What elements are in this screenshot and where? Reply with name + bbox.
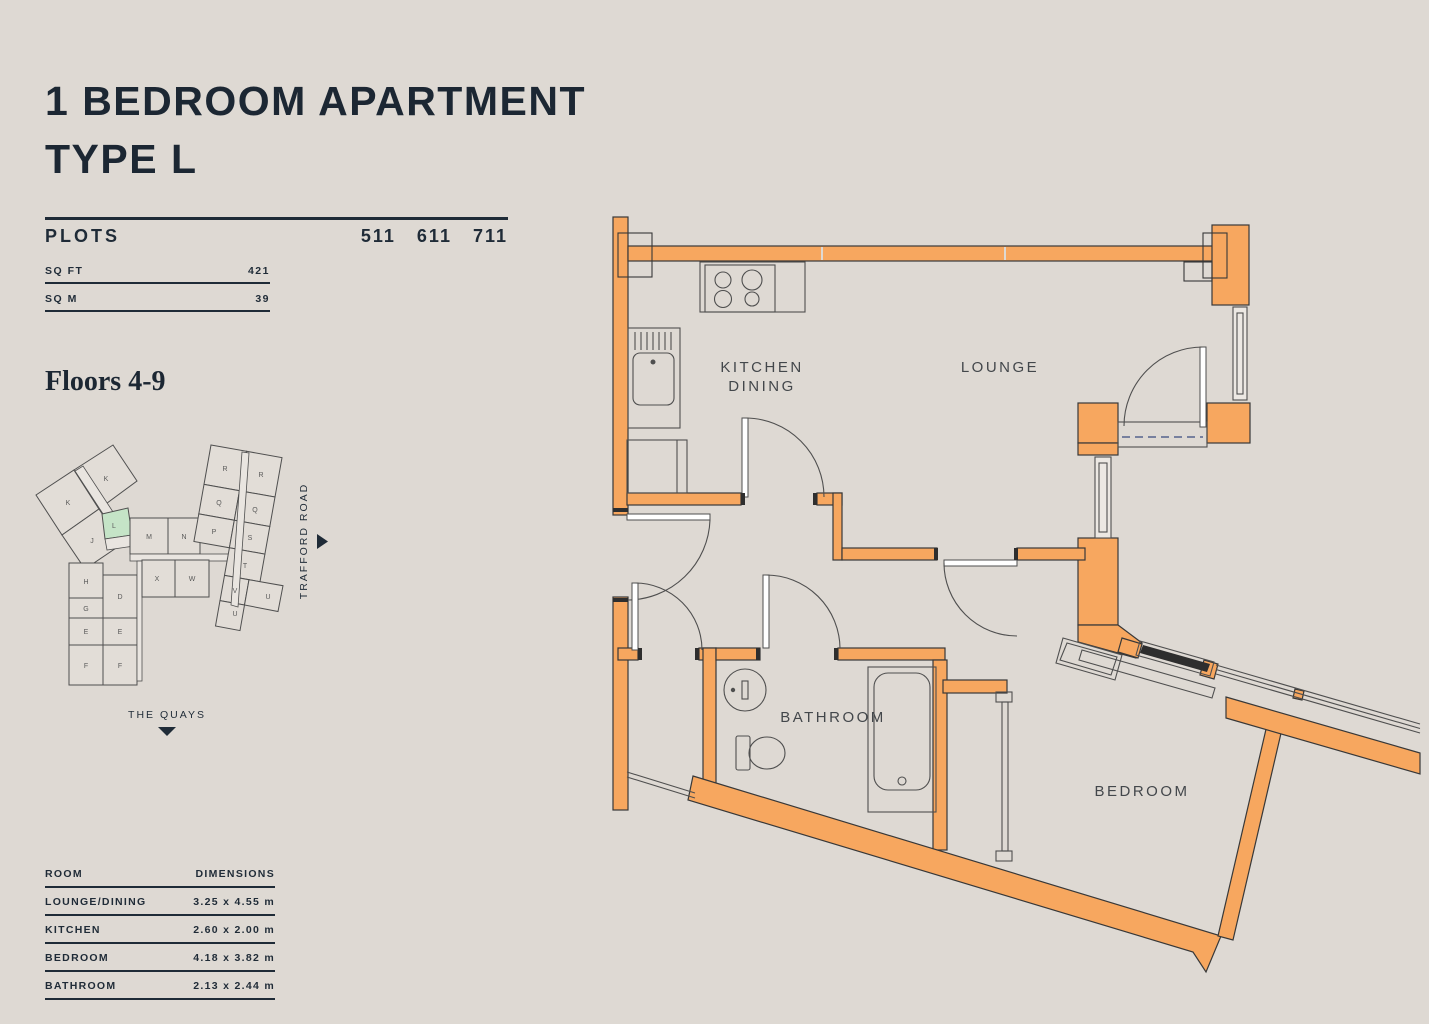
bathroom-top-wall-right: [838, 648, 945, 660]
row-bedroom-label: BEDROOM: [45, 943, 172, 971]
balcony-door-right-jamb: [1207, 403, 1250, 443]
plots-label: PLOTS: [45, 226, 120, 247]
the-quays-label-group: THE QUAYS: [128, 709, 206, 736]
lounge-window-right: [1233, 307, 1247, 400]
sqft-label: SQ FT: [45, 265, 83, 277]
lounge-window-mid: [1095, 457, 1111, 538]
apartment-floor-plan: KITCHEN DINING LOUNGE BATHROOM BEDROOM: [590, 195, 1429, 1024]
table-row: LOUNGE/DINING 3.25 x 4.55 m: [45, 887, 275, 915]
page-title: 1 BEDROOM APARTMENT TYPE L: [45, 72, 586, 188]
dimensions-header-room: ROOM: [45, 860, 172, 887]
storage-door: [632, 583, 702, 650]
trafford-road-label-group: TRAFFORD ROAD: [298, 483, 328, 599]
sqft-value: 421: [248, 265, 270, 277]
plots-values: 511 611 711: [361, 226, 508, 247]
left-wall-lower: [613, 597, 628, 810]
site-unit-label-l: L: [112, 523, 116, 530]
site-unit-label-t: T: [243, 563, 248, 570]
site-unit-label-e: E: [84, 629, 89, 636]
dark-glazing-band: [1140, 645, 1210, 672]
sqm-divider: [45, 310, 270, 312]
site-unit-label-k: K: [66, 500, 71, 507]
trafford-road-arrow-icon: [317, 534, 328, 549]
sqm-value: 39: [255, 293, 270, 305]
site-unit-label-e: E: [118, 629, 123, 636]
balcony-door-left-jamb: [1078, 403, 1118, 443]
kitchen-label-line2: DINING: [728, 378, 796, 395]
left-wall-upper: [613, 217, 628, 515]
table-row: BEDROOM 4.18 x 3.82 m: [45, 943, 275, 971]
page-title-line1: 1 BEDROOM APARTMENT: [45, 72, 586, 130]
floors-heading: Floors 4-9: [45, 366, 166, 398]
sqft-row: SQ FT 421: [45, 265, 270, 277]
site-unit-label-p: P: [212, 529, 217, 536]
site-unit-label-j: J: [90, 538, 94, 545]
dimensions-header-row: ROOM DIMENSIONS: [45, 860, 275, 887]
kitchen-cupboard: [627, 440, 687, 493]
site-unit-label-q: Q: [216, 500, 222, 507]
sqft-divider: [45, 282, 270, 284]
walls: [613, 217, 1420, 972]
site-unit-label-f: F: [118, 663, 122, 670]
table-row: BATHROOM 2.13 x 2.44 m: [45, 971, 275, 999]
row-bathroom-value: 2.13 x 2.44 m: [172, 971, 275, 999]
site-unit-label-r: R: [258, 472, 263, 479]
site-unit-label-v: V: [233, 588, 238, 595]
right-wall-upper: [1078, 443, 1118, 455]
dimensions-header-dimensions: DIMENSIONS: [172, 860, 275, 887]
site-unit-label-n: N: [181, 534, 186, 541]
row-kitchen-value: 2.60 x 2.00 m: [172, 915, 275, 943]
the-quays-arrow-icon: [158, 727, 176, 736]
plots-row: PLOTS 511 611 711: [45, 226, 508, 247]
bathroom-left-wall: [703, 648, 716, 783]
site-unit-label-k: K: [104, 476, 109, 483]
row-bedroom-value: 4.18 x 3.82 m: [172, 943, 275, 971]
kitchen-hob: [700, 262, 805, 312]
floorplan-page: 1 BEDROOM APARTMENT TYPE L PLOTS 511 611…: [0, 0, 1429, 1024]
page-title-line2: TYPE L: [45, 130, 586, 188]
kitchen-label-line1: KITCHEN: [720, 359, 803, 376]
balcony-door: [1118, 347, 1207, 447]
site-unit-label-u: U: [265, 594, 270, 601]
diagonal-bottom-wall: [688, 776, 1221, 972]
bedroom-door: [944, 560, 1017, 636]
site-unit-label-u: U: [232, 611, 237, 618]
sqm-label: SQ M: [45, 293, 78, 305]
sink-tap-icon: [651, 360, 656, 365]
bedroom-wardrobe: [996, 692, 1012, 861]
site-unit-label-f: F: [84, 663, 88, 670]
site-unit-label-d: D: [117, 594, 122, 601]
dimensions-table: ROOM DIMENSIONS LOUNGE/DINING 3.25 x 4.5…: [45, 860, 275, 1000]
site-plan: KKJLMNRRQQPSTVUUXWHDGEEFF TRAFFORD ROAD …: [35, 405, 345, 750]
entry-door: [627, 514, 710, 600]
kitchen-door: [742, 418, 824, 497]
site-unit-label-h: H: [83, 579, 88, 586]
bathroom-toilet: [736, 736, 785, 770]
corner-pillar: [1212, 225, 1249, 305]
row-bathroom-label: BATHROOM: [45, 971, 172, 999]
bathroom-label: BATHROOM: [780, 709, 886, 726]
site-unit-label-g: G: [83, 606, 88, 613]
hall-step-wall: [833, 493, 842, 560]
bedroom-right-wall: [1218, 712, 1285, 940]
bathroom-door: [763, 575, 840, 648]
trafford-road-label: TRAFFORD ROAD: [298, 483, 310, 599]
site-unit-l-highlight: [102, 508, 132, 539]
kitchen-bottom-wall: [627, 493, 741, 505]
bedroom-label: BEDROOM: [1094, 783, 1189, 800]
top-wall: [628, 246, 1213, 261]
table-row: KITCHEN 2.60 x 2.00 m: [45, 915, 275, 943]
lounge-label: LOUNGE: [961, 359, 1039, 376]
hall-wall-right: [1017, 548, 1085, 560]
kitchen-sink: [628, 328, 680, 428]
bathroom-basin: [724, 669, 766, 711]
site-unit-label-m: M: [146, 534, 152, 541]
bathroom-bathtub: [868, 667, 936, 812]
wardrobe-nook-wall: [943, 680, 1007, 693]
balcony-edge-band: [1226, 697, 1420, 774]
row-lounge-label: LOUNGE/DINING: [45, 887, 172, 915]
bathroom-top-wall-left: [716, 648, 760, 660]
header-divider: [45, 217, 508, 220]
row-lounge-value: 3.25 x 4.55 m: [172, 887, 275, 915]
site-unit-label-q: Q: [252, 507, 258, 514]
site-unit-label-w: W: [189, 576, 196, 583]
site-unit-label-x: X: [155, 576, 160, 583]
site-unit-label-s: S: [248, 535, 253, 542]
row-kitchen-label: KITCHEN: [45, 915, 172, 943]
sqm-row: SQ M 39: [45, 293, 270, 305]
site-unit-label-r: R: [222, 466, 227, 473]
hall-wall-left: [842, 548, 937, 560]
the-quays-label: THE QUAYS: [128, 709, 206, 721]
